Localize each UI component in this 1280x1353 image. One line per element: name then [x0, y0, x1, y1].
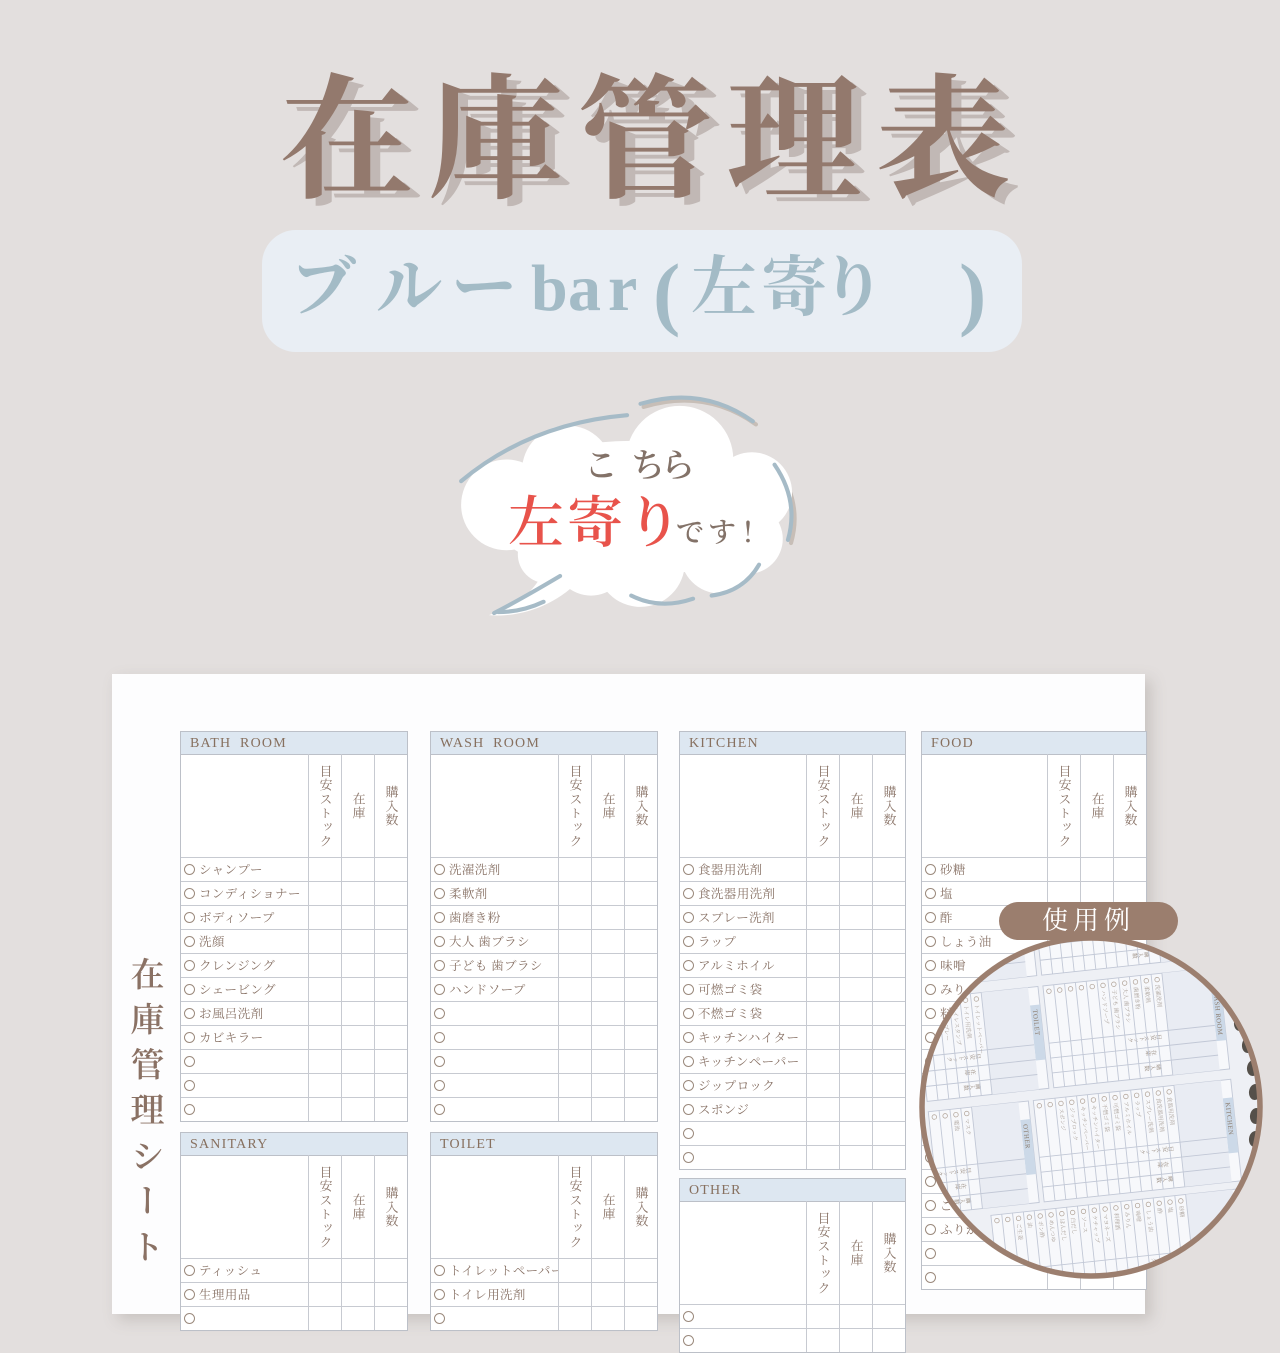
svg-text:酢: 酢	[1155, 1208, 1163, 1215]
svg-text:塩: 塩	[1166, 1207, 1174, 1214]
svg-text:油: 油	[1026, 1222, 1034, 1229]
svg-text:在庫: 在庫	[952, 954, 965, 962]
svg-text:購入数: 購入数	[951, 969, 970, 978]
svg-text:FOOD: FOOD	[1235, 1211, 1244, 1232]
svg-text:在庫: 在庫	[1168, 1268, 1181, 1276]
svg-text:目安ストック: 目安ストック	[934, 939, 970, 950]
